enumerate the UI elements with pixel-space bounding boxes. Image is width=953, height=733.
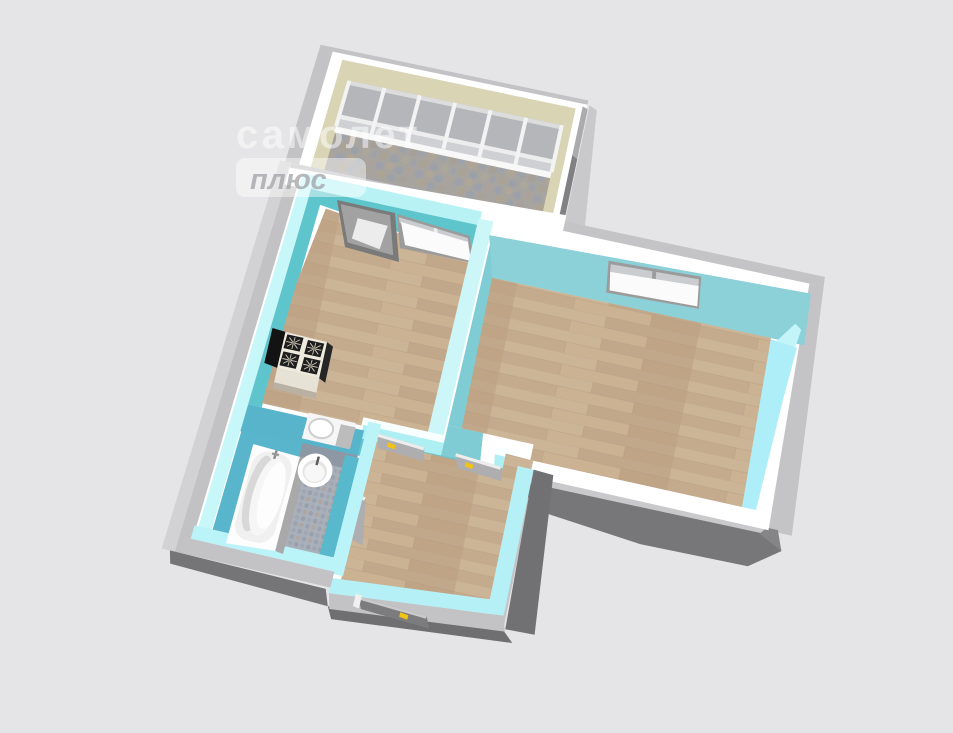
svg-text:плюс: плюс <box>250 164 327 196</box>
svg-text:самолет: самолет <box>236 113 421 157</box>
